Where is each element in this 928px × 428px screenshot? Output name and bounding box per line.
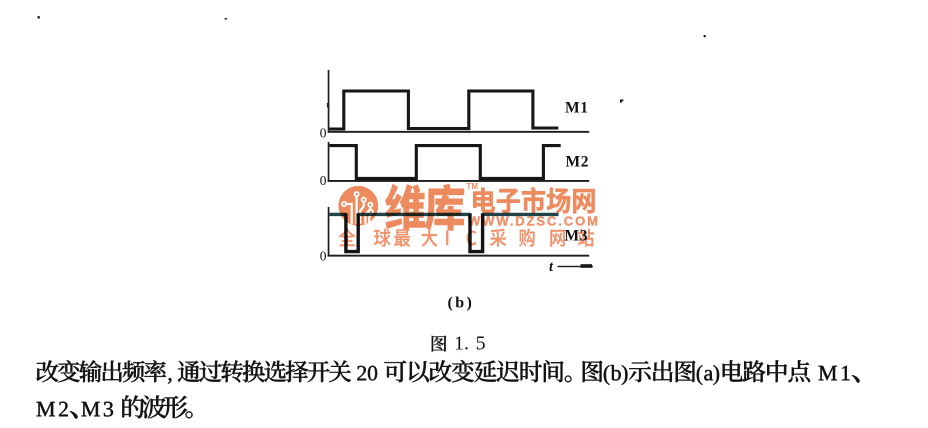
svg-text:0: 0 [320, 173, 327, 188]
svg-text:0: 0 [320, 248, 327, 263]
svg-text:TM: TM [467, 182, 479, 191]
svg-text:WWW.DZSC.COM: WWW.DZSC.COM [468, 213, 600, 228]
svg-text:t: t [549, 259, 554, 275]
svg-text:M1: M1 [565, 100, 589, 117]
svg-text:M2: M2 [566, 154, 590, 171]
svg-text:(b): (b) [448, 295, 475, 312]
svg-text:0: 0 [320, 126, 327, 141]
svg-text:1. 5: 1. 5 [454, 332, 486, 354]
